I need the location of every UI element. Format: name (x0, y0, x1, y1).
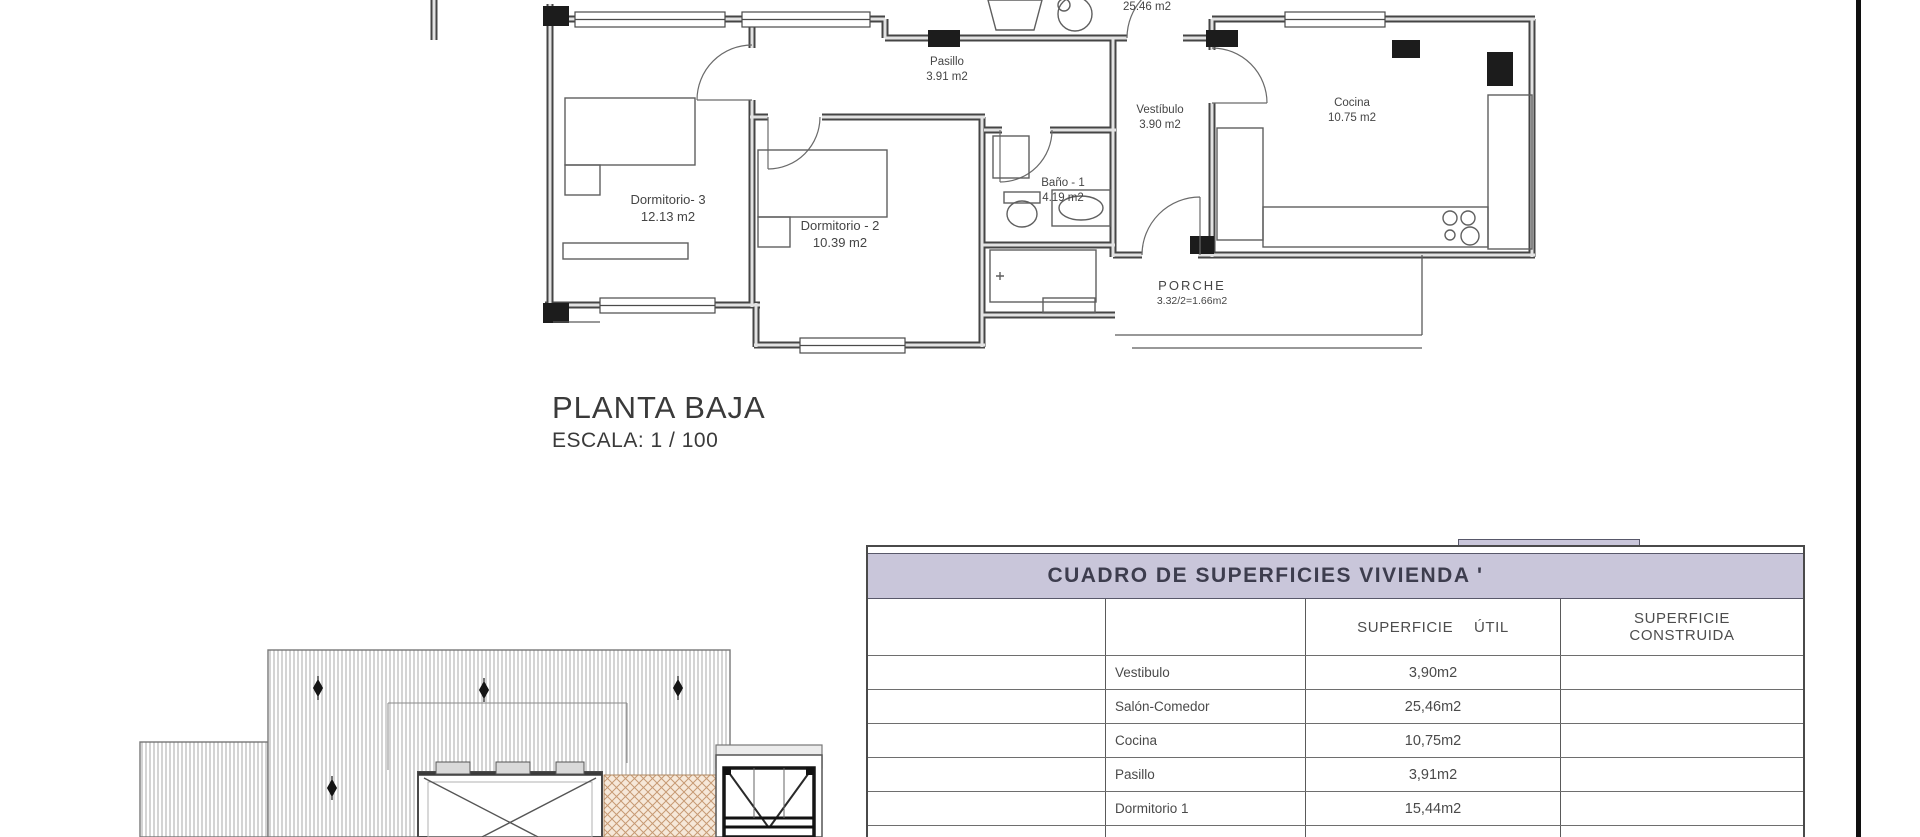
room-label-porche: PORCHE 3.32/2=1.66m2 (1157, 278, 1227, 309)
roof-pergola (716, 745, 822, 837)
drawing-scale: ESCALA: 1 / 100 (552, 429, 766, 453)
row-util: 25,46m2 (1305, 690, 1560, 723)
row-construida (1560, 826, 1803, 837)
room-label-pasillo: Pasillo 3.91 m2 (926, 55, 968, 85)
row-util: 3,90m2 (1305, 656, 1560, 689)
table-row: Salón-Comedor 25,46m2 (868, 689, 1803, 723)
header-superficie-util: SUPERFICIE ÚTIL (1305, 599, 1560, 655)
room-area: 3.32/2=1.66m2 (1157, 295, 1227, 309)
room-label-salon: 25.46 m2 (1123, 0, 1171, 15)
room-label-dormitorio3: Dormitorio- 3 12.13 m2 (630, 192, 705, 226)
surfaces-table: CUADRO DE SUPERFICIES VIVIENDA ' SUPERFI… (866, 545, 1805, 837)
drawing-title: PLANTA BAJA (552, 390, 766, 426)
row-util: 10,75m2 (1305, 724, 1560, 757)
row-construida (1560, 656, 1803, 689)
row-name: Dormitorio 1 (1105, 792, 1305, 825)
row-name: Dormitorio 2 (1105, 826, 1305, 837)
room-area: 25.46 m2 (1123, 0, 1171, 15)
room-label-cocina: Cocina 10.75 m2 (1328, 96, 1376, 126)
header-construida-line1: SUPERFICIE (1634, 610, 1730, 627)
room-area: 3.91 m2 (926, 70, 968, 85)
row-construida (1560, 792, 1803, 825)
row-name: Pasillo (1105, 758, 1305, 791)
plan-sheet: Dormitorio- 3 12.13 m2 Dormitorio - 2 10… (0, 0, 1920, 837)
row-construida (1560, 758, 1803, 791)
table-row: Dormitorio 2 10,39m2 (868, 825, 1803, 837)
table-row: Cocina 10,75m2 (868, 723, 1803, 757)
header-superficie-construida: SUPERFICIE CONSTRUIDA (1560, 599, 1803, 655)
room-name: Dormitorio- 3 (630, 192, 705, 207)
room-name: Dormitorio - 2 (801, 218, 880, 233)
room-name: PORCHE (1158, 278, 1226, 293)
row-construida (1560, 724, 1803, 757)
row-util: 3,91m2 (1305, 758, 1560, 791)
room-area: 12.13 m2 (630, 209, 705, 226)
row-name: Salón-Comedor (1105, 690, 1305, 723)
drawing-title-block: PLANTA BAJA ESCALA: 1 / 100 (552, 390, 766, 453)
room-name: Vestíbulo (1136, 104, 1183, 116)
furniture (563, 0, 1532, 313)
roof-porch-lattice (604, 775, 716, 837)
row-util: 15,44m2 (1305, 792, 1560, 825)
table-title-band: CUADRO DE SUPERFICIES VIVIENDA ' (868, 553, 1803, 599)
room-name: Pasillo (930, 56, 964, 68)
row-util: 10,39m2 (1305, 826, 1560, 837)
room-label-vestibulo: Vestíbulo 3.90 m2 (1136, 103, 1183, 133)
table-row: Vestibulo 3,90m2 (868, 655, 1803, 689)
room-name: Cocina (1334, 97, 1370, 109)
roof-skylight (418, 762, 602, 837)
roof-plan (140, 650, 822, 837)
room-label-bano1: Baño - 1 4.19 m2 (1041, 176, 1084, 206)
floor-plan (434, 0, 1535, 353)
row-name: Vestibulo (1105, 656, 1305, 689)
roof-left-wing (140, 742, 268, 837)
walls (434, 0, 1535, 347)
table-header-row: SUPERFICIE ÚTIL SUPERFICIE CONSTRUIDA (868, 599, 1803, 655)
table-row: Dormitorio 1 15,44m2 (868, 791, 1803, 825)
table-title: CUADRO DE SUPERFICIES VIVIENDA ' (1047, 564, 1483, 588)
row-construida (1560, 690, 1803, 723)
header-empty-2 (1105, 599, 1305, 655)
room-area: 10.75 m2 (1328, 111, 1376, 126)
room-area: 4.19 m2 (1041, 191, 1084, 206)
header-empty-1 (868, 599, 1105, 655)
room-area: 3.90 m2 (1136, 118, 1183, 133)
room-label-dormitorio2: Dormitorio - 2 10.39 m2 (801, 218, 880, 252)
header-construida-line2: CONSTRUIDA (1629, 627, 1734, 644)
table-row: Pasillo 3,91m2 (868, 757, 1803, 791)
row-name: Cocina (1105, 724, 1305, 757)
room-area: 10.39 m2 (801, 235, 880, 252)
room-name: Baño - 1 (1041, 177, 1084, 189)
sheet-border-line (1856, 0, 1861, 837)
